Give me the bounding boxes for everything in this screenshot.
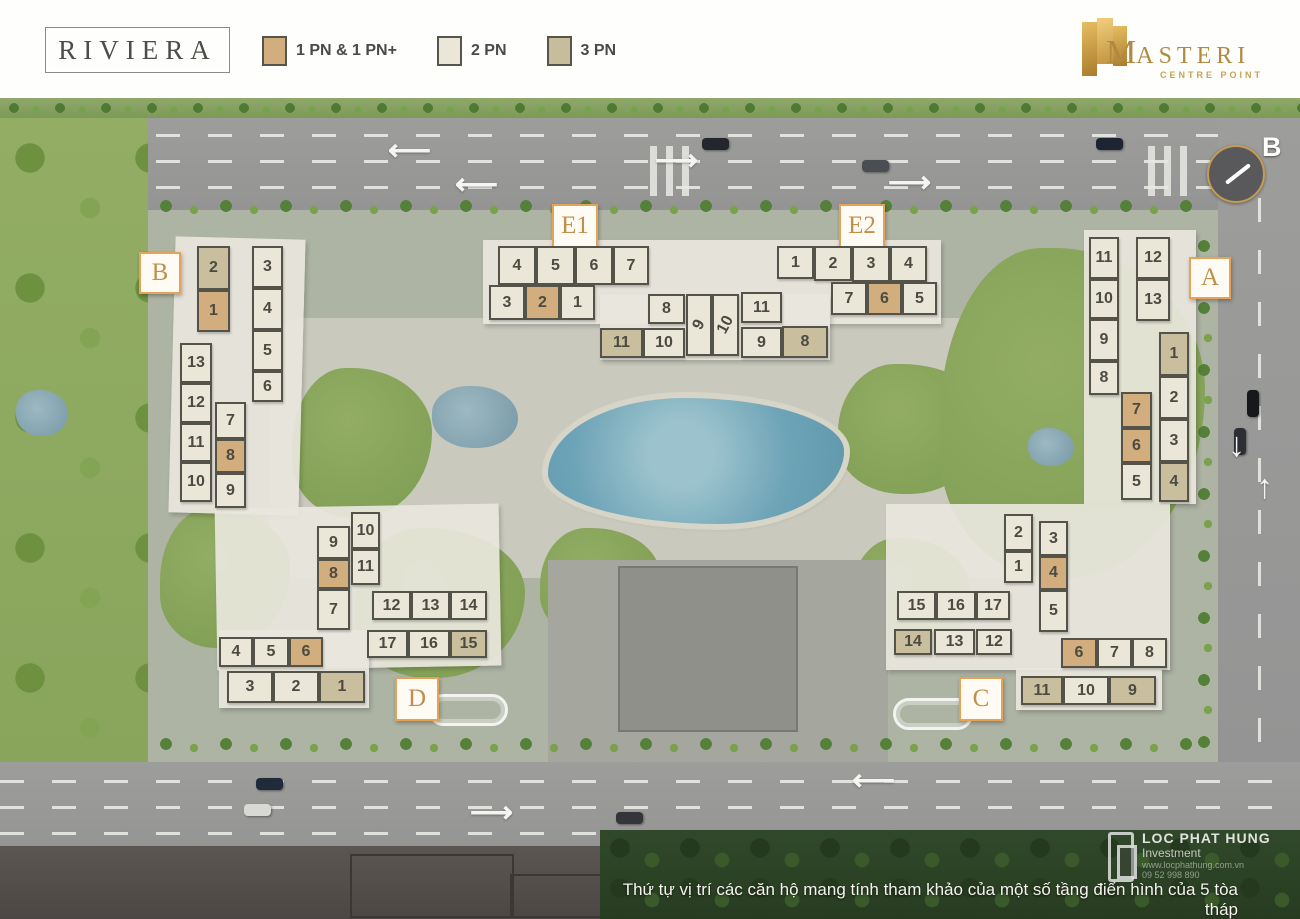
legend-swatch-3pn [547,36,572,66]
unit-cell: 2 [1159,376,1189,419]
compass-needle-icon [1225,163,1251,185]
unit-cell: 11 [1089,237,1119,279]
car [616,812,643,824]
unit-cell: 8 [317,559,350,589]
compass [1207,145,1265,203]
unit-cell: 10 [1089,279,1119,319]
unit-cell: 10 [1063,676,1109,705]
park-left [0,118,148,762]
unit-cell: 7 [1121,392,1152,428]
traffic-arrow-right-icon: ⟶ [888,168,931,198]
unit-cell: 3 [1159,419,1189,462]
site-plan: RIVIERA 1 PN & 1 PN+ 2 PN 3 PN MASTERI C… [0,0,1300,919]
unit-cell: 5 [252,330,283,371]
unit-cell: 10 [643,328,685,358]
car [702,138,729,150]
unit-cell: 9 [1089,319,1119,361]
central-pool [548,398,844,524]
pond [432,386,518,448]
unit-cell: 9 [1109,676,1156,705]
unit-cell: 9 [741,327,782,358]
building-label-A: A [1189,257,1231,299]
unit-cell: 4 [252,288,283,330]
unit-cell: 13 [180,343,212,383]
unit-cell: 4 [1039,556,1068,590]
masteri-logo: MASTERI CENTRE POINT [1076,6,1266,92]
unit-cell: 8 [1089,361,1119,395]
unit-cell: 11 [1021,676,1063,705]
unit-cell: 1 [1159,332,1189,376]
unit-cell: 9 [686,294,712,356]
unit-cell: 10 [180,462,212,502]
unit-cell: 15 [450,630,487,658]
unit-cell: 17 [367,630,408,658]
legend-label: 2 PN [471,42,507,60]
unit-cell: 12 [372,591,411,620]
unit-cell: 5 [1121,463,1152,500]
unit-cell: 9 [215,473,246,508]
brand-subtitle: CENTRE POINT [1160,70,1263,80]
legend-swatch-2pn [437,36,462,66]
unit-cell: 5 [902,282,937,315]
hedge-row-top [0,98,1300,118]
building-label-E1: E1 [552,204,598,248]
unit-cell: 5 [1039,590,1068,632]
unit-cell: 11 [741,292,782,323]
unit-cell: 7 [317,589,350,630]
unit-cell: 2 [197,246,230,290]
unit-cell: 12 [1136,237,1170,279]
unit-cell: 11 [351,549,380,585]
building-outline [510,874,604,918]
unit-cell: 7 [1097,638,1132,668]
traffic-arrow-left-icon: ⟵ [388,136,431,166]
unit-cell: 5 [536,246,575,285]
unit-cell: 11 [180,423,212,462]
legend-item-2pn: 2 PN [437,36,507,66]
unit-cell: 2 [525,285,560,320]
unit-cell: 13 [934,629,975,655]
unit-cell: 17 [976,591,1010,620]
unit-cell: 16 [408,630,450,658]
unit-cell: 10 [712,294,739,356]
developer-phone: 09 52 998 890 [1142,870,1292,880]
brand-name: MASTERI [1106,34,1250,72]
legend-item-3pn: 3 PN [547,36,617,66]
unit-cell: 12 [180,383,212,423]
unit-type-legend: 1 PN & 1 PN+ 2 PN 3 PN [262,36,642,66]
developer-tagline: Investment [1142,846,1292,860]
developer-website: www.locphathung.com.vn [1142,860,1292,870]
unit-cell: 13 [1136,279,1170,321]
unit-cell: 2 [814,246,852,281]
header: RIVIERA 1 PN & 1 PN+ 2 PN 3 PN MASTERI C… [0,0,1300,98]
unit-cell: 6 [575,246,613,285]
traffic-arrow-left-icon: ⟵ [852,766,895,796]
building-label-B: B [139,252,181,294]
unit-cell: 7 [613,246,649,285]
unit-cell: 2 [273,671,319,703]
palm-row [150,732,1210,758]
unit-cell: 10 [351,512,380,549]
unit-cell: 1 [560,285,595,320]
unit-cell: 7 [215,402,246,439]
compass-north-label: B [1262,132,1282,163]
unit-cell: 12 [976,629,1012,655]
building-label-D: D [395,677,439,721]
car [256,778,283,790]
car [1247,390,1259,417]
unit-cell: 13 [411,591,450,620]
path-loop [428,694,508,726]
unit-cell: 2 [1004,514,1033,551]
unit-cell: 6 [1121,428,1152,463]
unit-cell: 4 [1159,462,1189,502]
legend-label: 1 PN & 1 PN+ [296,42,397,60]
developer-name: LOC PHAT HUNG [1142,830,1292,846]
unit-cell: 7 [831,282,867,315]
unit-cell: 8 [215,439,246,473]
unit-cell: 14 [894,629,932,655]
building-label-E2: E2 [839,204,885,248]
building-outline [350,854,514,918]
car [862,160,889,172]
unit-cell: 3 [227,671,273,703]
traffic-arrow-left-icon: ⟵ [455,170,498,200]
legend-label: 3 PN [581,42,617,60]
unit-cell: 1 [319,671,365,703]
park-pond [16,390,68,436]
footer-note: Thứ tự vị trí các căn hộ mang tính tham … [598,880,1238,919]
unit-cell: 11 [600,328,643,358]
unit-cell: 15 [897,591,936,620]
unit-cell: 4 [890,246,927,282]
building-label-C: C [959,677,1003,721]
legend-swatch-1pn [262,36,287,66]
crosswalk [1148,146,1196,196]
unit-cell: 8 [648,294,685,324]
palm-row [150,194,1210,220]
pond [1028,428,1074,466]
unit-cell: 9 [317,526,350,559]
traffic-arrow-right-icon: ⟶ [470,798,513,828]
traffic-arrow-right-icon: ⟶ [655,146,698,176]
unit-cell: 14 [450,591,487,620]
traffic-arrow-up-icon: ↑ [1256,470,1273,504]
unit-cell: 1 [1004,551,1033,583]
unit-cell: 8 [1132,638,1167,668]
car [244,804,271,816]
master-plan-map: ⟵ ⟵ ⟶ ⟶ ⟵ ⟶ ↓ ↑ B Thứ tự vị trí các căn … [0,98,1300,919]
unit-cell: 5 [253,637,289,667]
unit-cell: 8 [782,326,828,358]
project-title: RIVIERA [58,35,217,66]
unit-cell: 1 [777,246,814,279]
traffic-arrow-down-icon: ↓ [1228,428,1245,462]
unit-cell: 16 [936,591,976,620]
unit-cell: 6 [252,371,283,402]
unit-cell: 1 [197,290,230,332]
unit-cell: 3 [1039,521,1068,556]
unit-cell: 3 [852,246,890,282]
developer-watermark: LOC PHAT HUNG Investment www.locphathung… [1142,830,1292,880]
unit-cell: 3 [252,246,283,288]
central-building [618,566,798,732]
project-title-box: RIVIERA [45,27,230,73]
unit-cell: 3 [489,285,525,320]
unit-cell: 6 [1061,638,1097,668]
unit-cell: 4 [498,246,536,285]
unit-cell: 6 [867,282,902,315]
developer-logo-icon [1108,832,1134,882]
unit-cell: 6 [289,637,323,667]
unit-cell: 4 [219,637,253,667]
car [1096,138,1123,150]
legend-item-1pn: 1 PN & 1 PN+ [262,36,397,66]
